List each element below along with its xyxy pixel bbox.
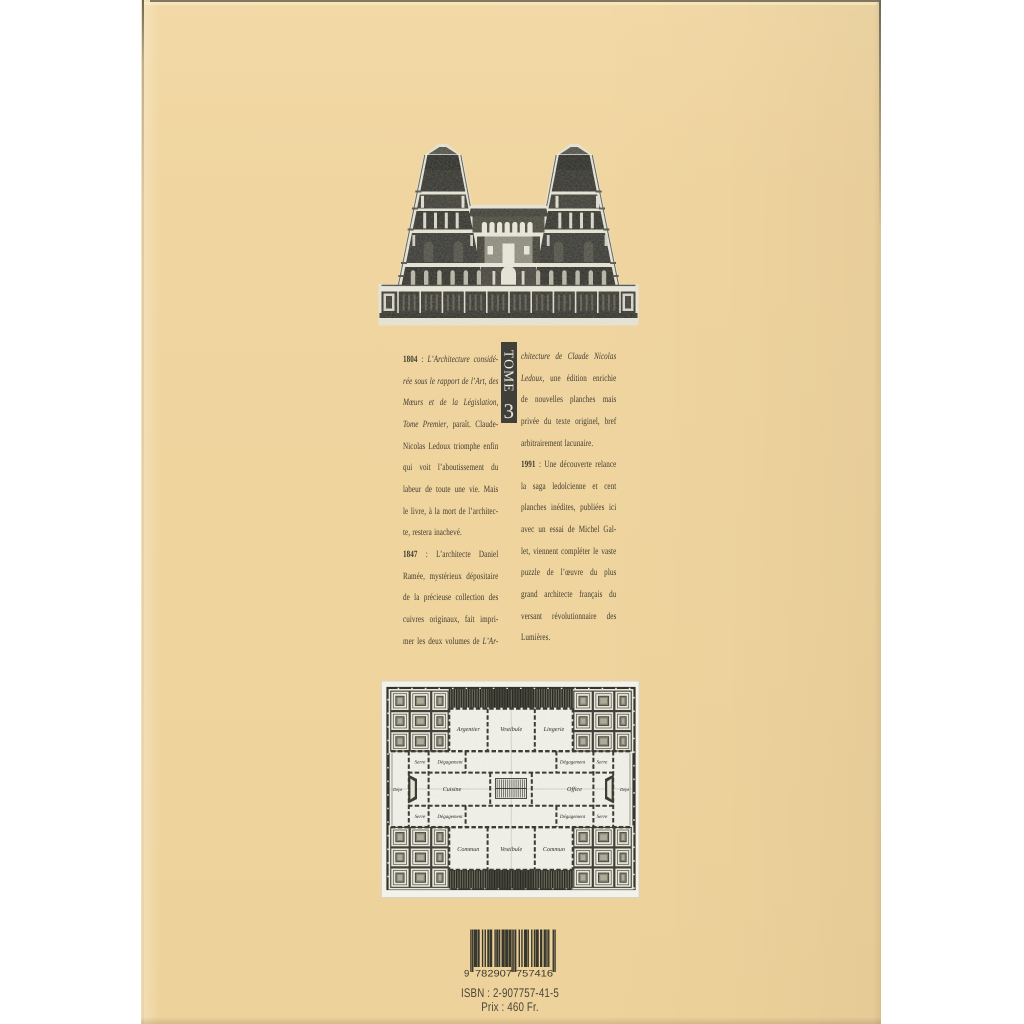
svg-text:757416: 757416 [516, 969, 553, 980]
svg-text:782907: 782907 [475, 969, 512, 980]
svg-text:9: 9 [464, 969, 469, 980]
